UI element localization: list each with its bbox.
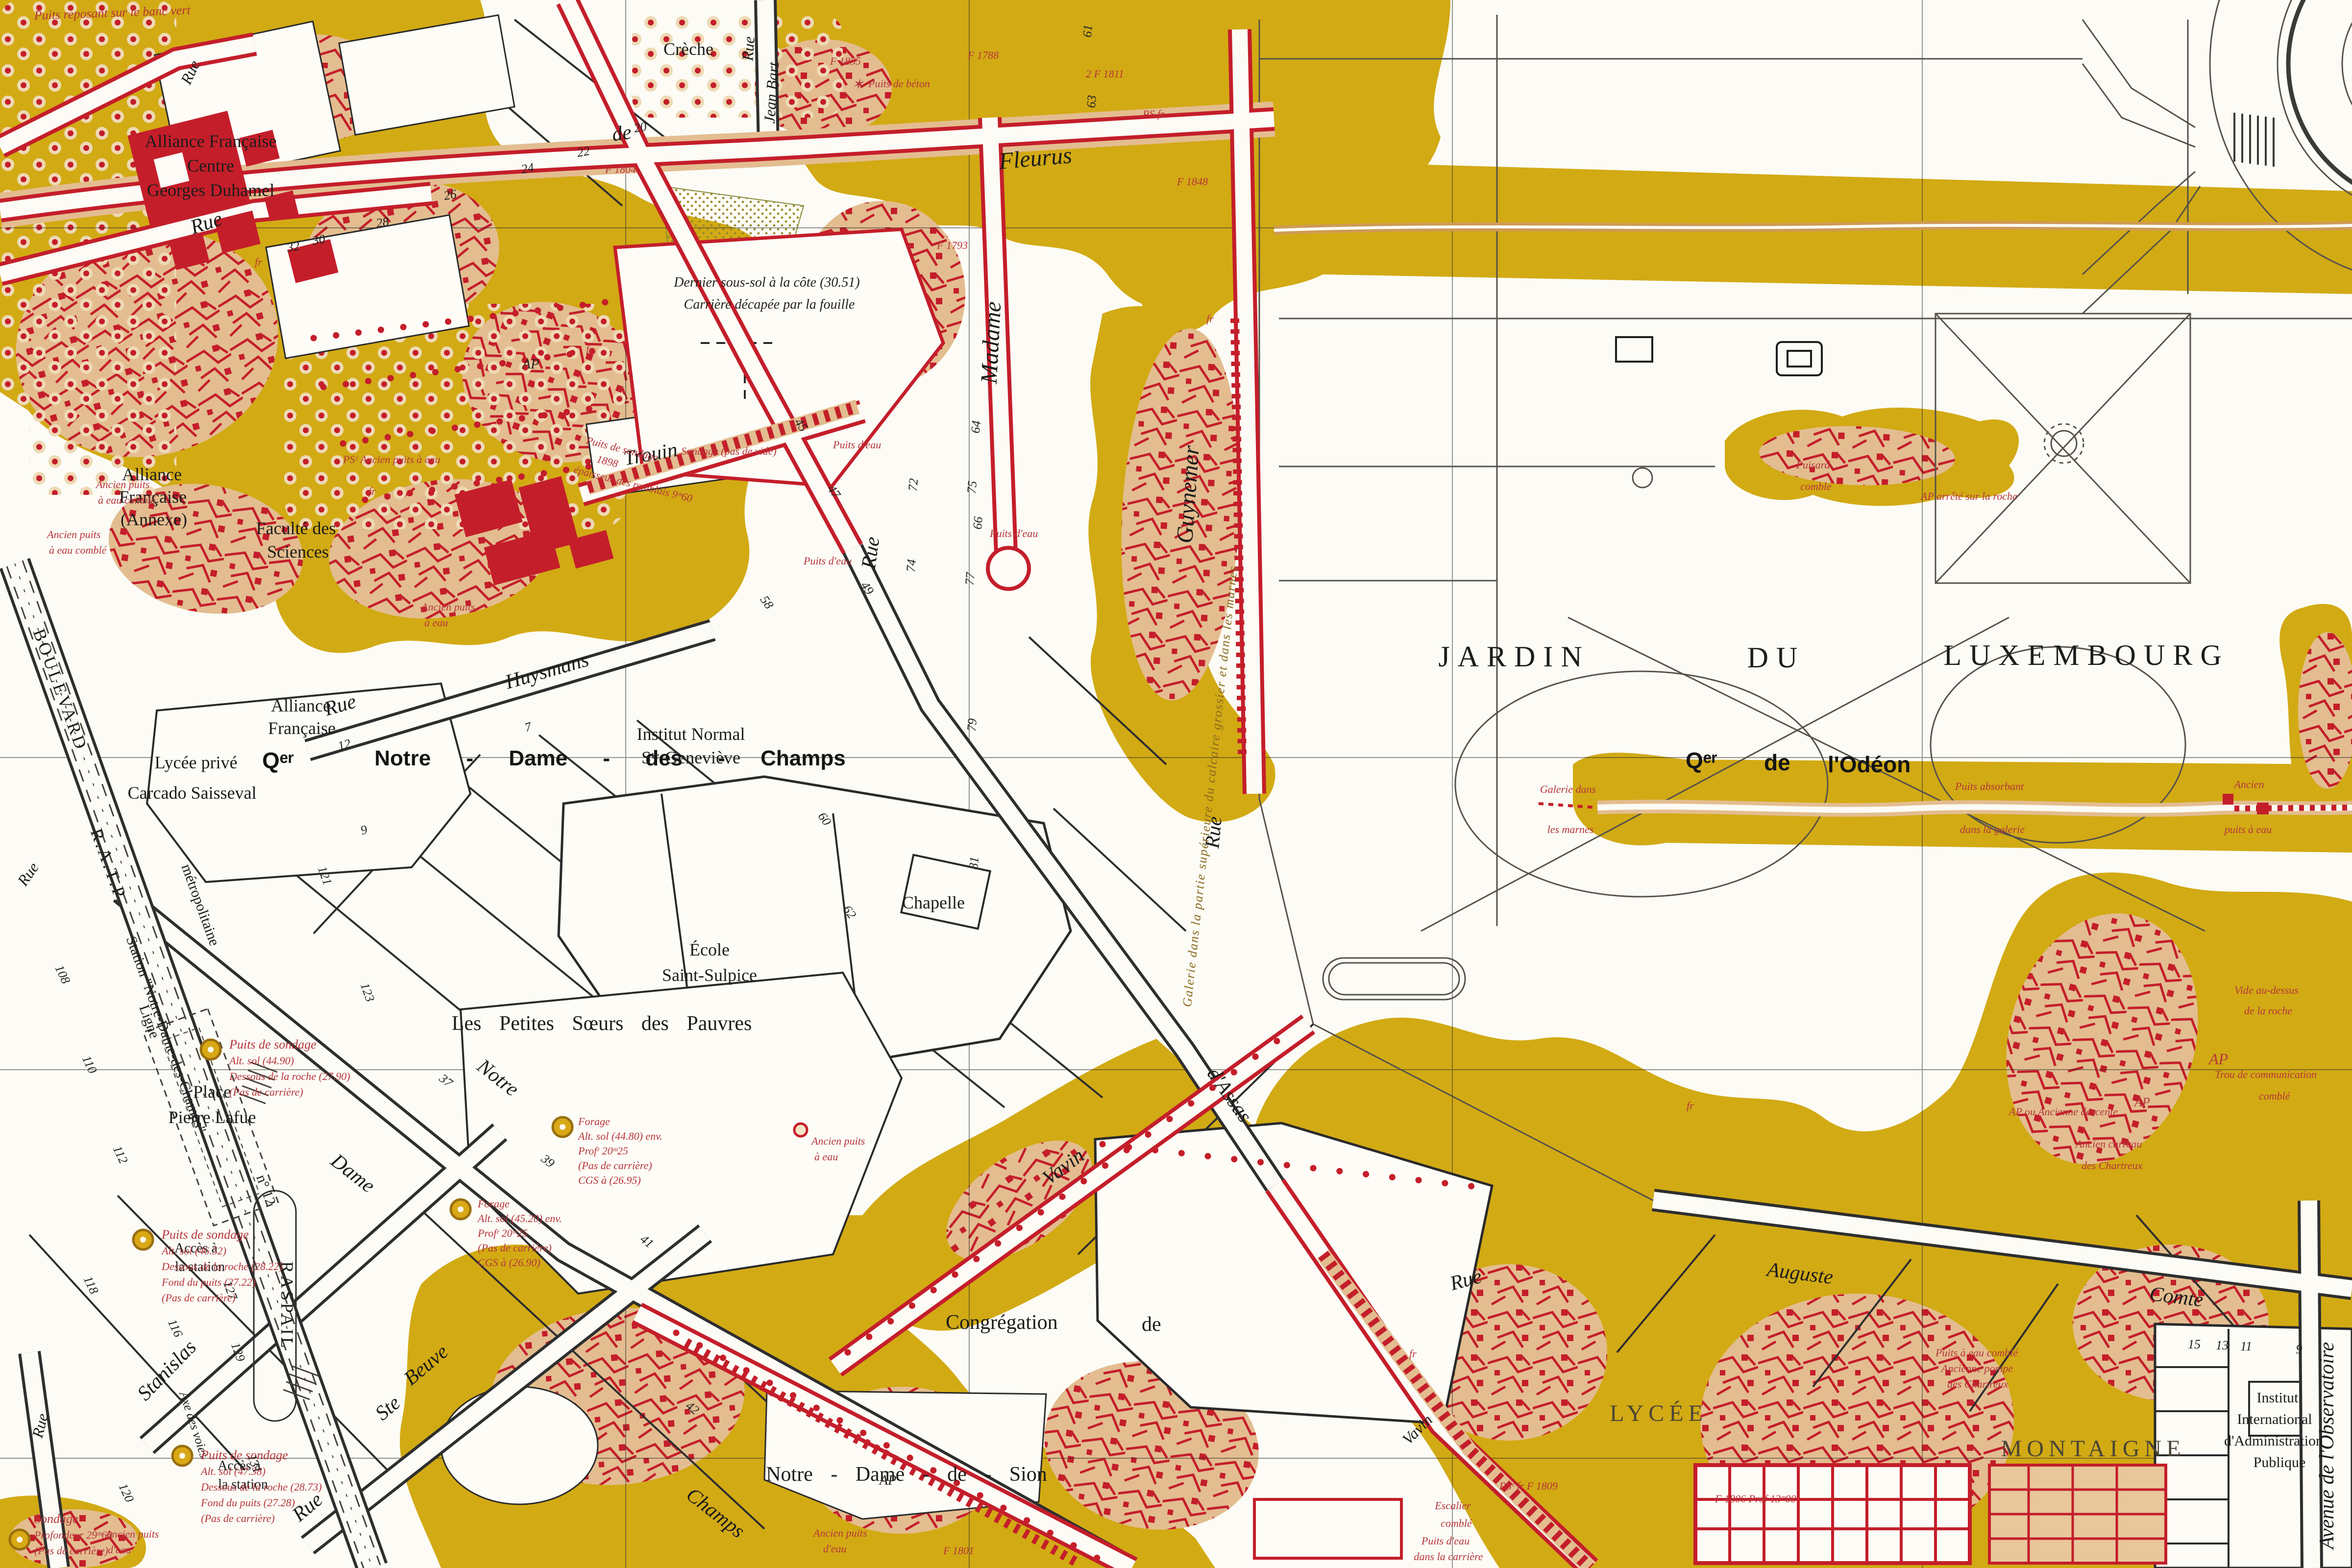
label-qer-ndc: Qᵉʳ — [262, 748, 294, 773]
house-number: 28 — [375, 214, 390, 230]
bldg-sion: Notre - Dame - de - Sion — [766, 1463, 1047, 1486]
house-number: 26 — [442, 187, 458, 203]
ann-ps-fr: PS fr — [1142, 108, 1165, 120]
ann-f1801: F 1801 — [943, 1544, 974, 1557]
house-number: 13 — [2216, 1338, 2229, 1352]
bldg-institut2: Sᵗᵉ-Geneviève — [641, 748, 740, 767]
ann-sondage-d-2: (Pas de carrière) — [34, 1544, 108, 1557]
ann-sondage-a-1: Alt. sol (44.90) — [228, 1054, 294, 1067]
ann-ape-sw-0: Ancien puits — [104, 1528, 159, 1540]
ann-f1811: 2 F 1811 — [1086, 68, 1124, 80]
ann-sondage-b-3: Fond du puits (27.22) — [161, 1276, 256, 1288]
ann-forage-b-4: CGS à (26.90) — [478, 1256, 540, 1269]
bldg-creche: Crèche — [663, 39, 713, 59]
ann-ap-roche: AP arrêté sur la roche — [1920, 490, 2017, 502]
bldg-alliance1c: Georges Duhamel — [147, 180, 274, 200]
ann-forage-b-3: (Pas de carrière) — [478, 1242, 552, 1254]
ann-puits-carriere-0: Puits d'eau — [1421, 1535, 1470, 1547]
ann-carreau-0: Ancien carreau — [2075, 1138, 2142, 1150]
ann-sondage-b-0: Puits de sondage — [161, 1227, 249, 1242]
ann-ape-v-1: à eau — [814, 1151, 838, 1163]
bldg-congregation: Congrégation — [946, 1311, 1058, 1334]
bldg-lycee-prive2: Carcado Saisseval — [128, 783, 257, 803]
label-qer-ndc-name: Notre - Dame - des - Champs — [374, 746, 845, 770]
ann-puits-eau-3: Puits d'eau — [833, 439, 881, 451]
ann-ancien-puits-odeon-1: puits à eau — [2224, 823, 2272, 835]
ann-apc1-0: Ancien puits — [95, 478, 149, 490]
bldg-iiap3: d'Administration — [2224, 1433, 2323, 1449]
ann-puits-absorbant-0: Puits absorbant — [1955, 780, 2024, 792]
ann-forage-a-4: CGS à (26.95) — [578, 1174, 641, 1186]
bldg-alliance2c: (Annexe) — [121, 510, 187, 529]
ann-sondage-c-0: Puits de sondage — [200, 1448, 288, 1462]
bldg-ecole1: École — [689, 940, 730, 959]
label-qer-odeon-de: de — [1764, 750, 1790, 775]
bldg-institut1: Institut Normal — [637, 724, 745, 744]
ann-ape-sion-0: Ancien puits — [812, 1527, 867, 1539]
ann-ape-sion-1: d'eau — [823, 1543, 846, 1555]
ann-forage-b-2: Profʳ 20ᵐ25 — [477, 1227, 528, 1239]
metro-raspail: RASPAIL — [277, 1261, 297, 1350]
ann-puits-absorbant-1: dans la galerie — [1960, 823, 2025, 835]
label-jardin: JARDIN — [1438, 640, 1590, 673]
place-pierre-lafue-2: Pierre Lafue — [169, 1107, 256, 1127]
ann-escalier-0: Escalier — [1434, 1499, 1471, 1512]
street-madame: Madame — [976, 301, 1006, 385]
ann-trou-comm-1: comblé — [2259, 1090, 2291, 1102]
ann-forage-b-1: Alt. sol (45.20) env. — [477, 1212, 562, 1225]
bldg-congregation-de: de — [1142, 1313, 1161, 1336]
house-number: 20 — [633, 119, 648, 135]
ann-escalier-1: comblé — [1441, 1517, 1472, 1529]
ann-vide-roche-0: Vide au-dessus — [2234, 984, 2299, 996]
ann-forage-a-3: (Pas de carrière) — [578, 1159, 652, 1172]
bldg-faculte1: Faculté des — [256, 518, 336, 538]
ann-dernier-2: Carrière décapée par la fouille — [684, 297, 855, 312]
house-number: 66 — [970, 516, 985, 530]
mark-fr-3: fr — [1206, 313, 1214, 325]
house-number: 24 — [520, 160, 535, 176]
ann-puits-beton: Puits de béton — [868, 77, 930, 90]
ann-f1855: F 1855 — [830, 55, 861, 67]
bldg-iiap1: Institut — [2256, 1390, 2299, 1406]
ann-sondage-d-0: Sondage — [34, 1512, 78, 1526]
red-well-square-icon — [2223, 794, 2233, 805]
house-number: 72 — [906, 478, 921, 491]
ann-pompe: Puits à eau comblé Ancienne pompe des Ch… — [1935, 1347, 2018, 1390]
ann-sondage-b-2: Dessous de la roche (28.22) — [161, 1260, 283, 1273]
bldg-alliance3b: Française — [268, 718, 336, 738]
house-number: 15 — [2188, 1337, 2201, 1351]
ancient-well-ring-icon — [794, 1124, 807, 1136]
ann-forage-b-0: Forage — [477, 1198, 510, 1210]
bldg-lycee-prive1: Lycée privé — [155, 753, 238, 772]
street-fleurus-de: de — [611, 121, 633, 146]
ann-pse-ancien: PSᶜ Ancien puits à eau — [343, 453, 440, 465]
bldg-alliance3a: Alliance — [271, 696, 331, 715]
street-jean-bart-rue: Rue — [738, 36, 758, 62]
ann-ap-descente: AP ou Ancienne descente — [2008, 1105, 2118, 1118]
house-number: 74 — [904, 559, 919, 572]
ann-sondage-c-4: (Pas de carrière) — [201, 1512, 275, 1524]
street-dassas-rue: Rue — [857, 536, 884, 571]
label-qer-odeon-name: l'Odéon — [1828, 752, 1911, 777]
ann-f1848: F 1848 — [1176, 175, 1208, 188]
mark-fr-1: fr — [255, 256, 262, 268]
house-number: 75 — [964, 480, 980, 494]
ann-f1793: F 1793 — [936, 239, 968, 251]
ann-sondage-d-1: Profondeur 29ᵐ60 — [34, 1529, 112, 1541]
ann-sondage-b-1: Alt. sol (46.52) — [161, 1245, 226, 1257]
label-lycee: LYCÉE — [1610, 1400, 1708, 1426]
map-sheet: JARDIN DU LUXEMBOURG Qᵉʳ Notre - Dame - … — [0, 0, 2352, 1568]
house-number: 9 — [2296, 1342, 2303, 1356]
bldg-alliance1b: Centre — [187, 156, 234, 175]
mark-fr-6: fr — [586, 343, 593, 355]
mark-fr-4: fr — [1409, 1347, 1417, 1360]
mark-ap-3: AP — [521, 357, 539, 372]
ann-galerie-odeon-0: Galerie dans — [1540, 783, 1596, 795]
ann-f1806: F 1806 Prof 13ᵐ00 — [1715, 1493, 1796, 1505]
place-pierre-lafue-1: Place — [193, 1082, 231, 1102]
mark-fr-2: fr — [368, 485, 376, 497]
ann-sondage-a-2: Dessous de la roche (27.90) — [229, 1070, 350, 1082]
ann-sondage-c-3: Fond du puits (27.28) — [200, 1496, 295, 1509]
bldg-iiap2: International — [2237, 1411, 2312, 1427]
ann-puisard-0: Puisard — [1796, 459, 1831, 471]
ann-sondage-a-0: Puits de sondage — [229, 1037, 317, 1052]
ann-f1804: F 1804 — [605, 163, 636, 175]
ann-apc1-1: à eau comblé — [98, 494, 156, 506]
ann-sondage-a-3: (Pas de carrière) — [229, 1086, 303, 1098]
red-well-square-icon — [2257, 803, 2269, 814]
house-number: 77 — [962, 571, 978, 586]
ann-vide-roche-1: de la roche — [2244, 1004, 2292, 1017]
label-luxembourg: LUXEMBOURG — [1943, 639, 2229, 671]
ann-carreau-1: des Chartreux — [2082, 1159, 2143, 1172]
quarry-map-canvas: JARDIN DU LUXEMBOURG Qᵉʳ Notre - Dame - … — [0, 0, 2352, 1568]
mark-ap-2: AP — [2133, 1095, 2150, 1109]
house-number: 11 — [2240, 1339, 2252, 1353]
ann-pompe-0: Puits à eau comblé — [1935, 1347, 2018, 1359]
ann-ape-v-0: Ancien puits — [810, 1135, 865, 1147]
house-number: 61 — [1080, 24, 1095, 38]
bldg-faculte2: Sciences — [267, 542, 329, 562]
house-number: 30 — [311, 232, 326, 248]
ann-sondage-c-2: Dessous de la roche (28.73) — [200, 1481, 322, 1493]
house-number: 63 — [1084, 95, 1099, 108]
ann-f1809: PSᶜ fr F 1809 — [1499, 1480, 1558, 1492]
ann-forage-a-2: Profʳ 20ᵐ25 — [578, 1145, 628, 1157]
label-montaigne: MONTAIGNE — [2001, 1436, 2186, 1462]
mark-fr-5: fr — [1687, 1100, 1694, 1112]
bldg-chapelle: Chapelle — [902, 893, 965, 912]
bldg-ecole2: Saint-Sulpice — [662, 965, 757, 985]
label-du: DU — [1747, 641, 1806, 674]
ann-puits-carriere-1: dans la carrière — [1414, 1550, 1483, 1563]
house-number: 64 — [968, 420, 983, 434]
ann-apc2-0: Ancien puits — [46, 528, 100, 540]
ann-ape-c-0: Ancien puits — [420, 601, 475, 613]
ann-trou-comm-0: Trou de communication — [2215, 1068, 2317, 1080]
bldg-alliance1a: Alliance Française — [145, 131, 277, 151]
ann-forage-a-1: Alt. sol (44.80) env. — [577, 1130, 662, 1142]
ann-apc2-1: à eau comblé — [49, 544, 107, 556]
ann-ape-sw-1: d'eau — [108, 1543, 131, 1556]
label-qer-odeon: Qᵉʳ — [1686, 748, 1717, 773]
mark-ap-1: AP — [2208, 1050, 2228, 1068]
ann-galerie-odeon-1: les marnes — [1547, 823, 1594, 835]
ann-ape-c-1: à eau — [424, 616, 448, 629]
mark-ap-4: AP — [879, 1473, 896, 1488]
ann-pompe-1: Ancienne pompe — [1940, 1362, 2013, 1374]
bldg-petites-soeurs: Les Petites Sœurs des Pauvres — [452, 1012, 752, 1035]
house-number: 81 — [966, 856, 981, 870]
ann-pompe-2: des Chartreux — [1947, 1378, 2009, 1390]
house-number: 22 — [576, 144, 591, 160]
ann-ancien-puits-odeon-0: Ancien — [2233, 778, 2264, 790]
ann-puits-eau-1: Puits d'eau — [803, 555, 852, 567]
ann-dernier-1: Dernier sous-sol à la côte (30.51) — [673, 275, 860, 290]
ann-puisard-1: comblé — [1800, 480, 1832, 492]
house-number: 32 — [285, 239, 301, 255]
ann-forage-a-0: Forage — [578, 1115, 610, 1127]
ann-puits-eau-2: Puits d'eau — [989, 527, 1038, 539]
bldg-iiap4: Publique — [2254, 1454, 2306, 1470]
ann-f1788: F 1788 — [967, 49, 999, 61]
ann-sondage-pv: Sondage (pas de vide) — [681, 445, 777, 457]
house-number: 79 — [964, 718, 980, 732]
star-icon: ✶ — [852, 76, 865, 93]
